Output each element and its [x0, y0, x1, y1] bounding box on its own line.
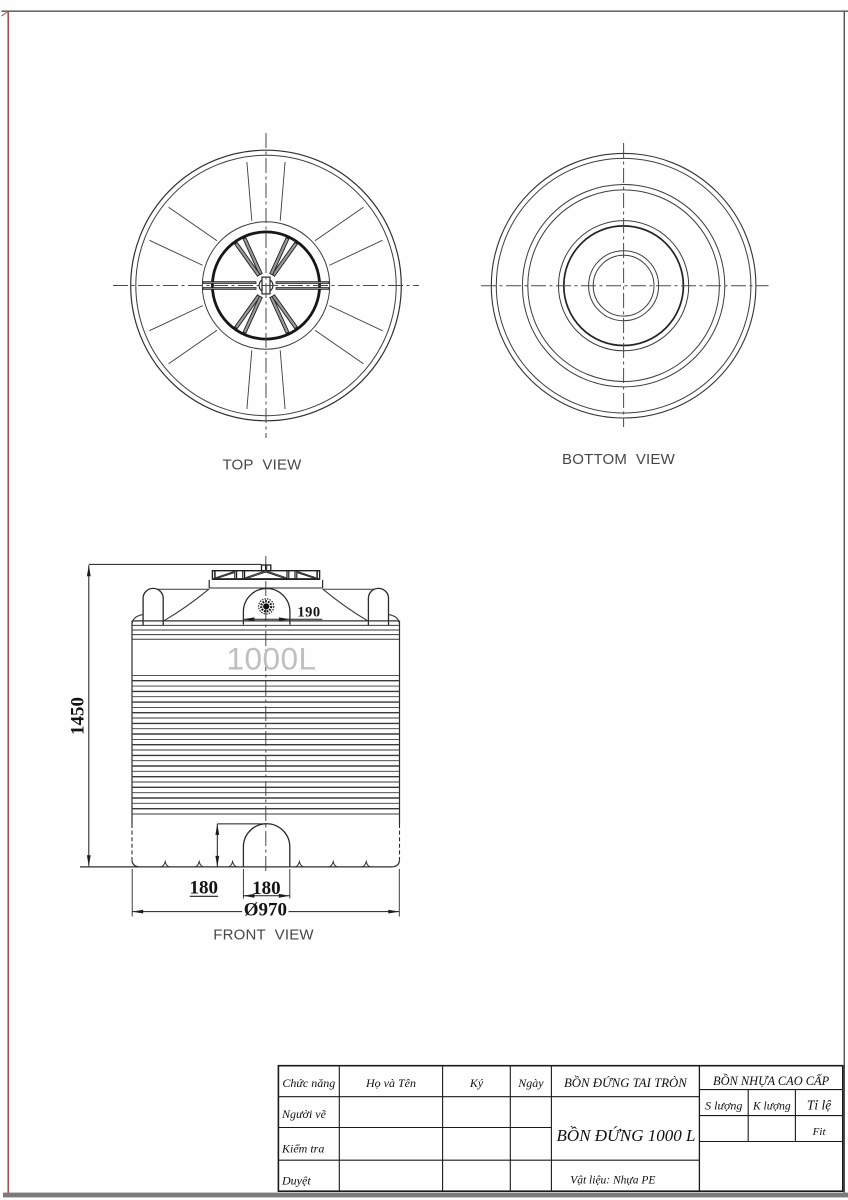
svg-text:180: 180	[190, 878, 219, 899]
svg-text:Chức năng: Chức năng	[282, 1076, 335, 1090]
svg-text:FRONT VIEW: FRONT VIEW	[213, 927, 314, 944]
svg-text:Vật liệu: Nhựa PE: Vật liệu: Nhựa PE	[570, 1175, 655, 1187]
svg-text:Duyệt: Duyệt	[281, 1174, 311, 1188]
svg-text:1450: 1450	[68, 697, 89, 735]
svg-text:BỒN ĐỨNG 1000 L: BỒN ĐỨNG 1000 L	[557, 1125, 696, 1145]
svg-text:1000L: 1000L	[226, 641, 316, 677]
svg-text:Tỉ lệ: Tỉ lệ	[807, 1098, 832, 1113]
svg-text:K lượng: K lượng	[752, 1101, 791, 1113]
svg-text:Họ và Tên: Họ và Tên	[365, 1076, 416, 1090]
svg-text:Ø970: Ø970	[244, 899, 287, 920]
svg-text:180: 180	[252, 878, 281, 899]
svg-text:BOTTOM VIEW: BOTTOM VIEW	[562, 451, 676, 468]
svg-text:BỒN ĐỨNG TAI TRÒN: BỒN ĐỨNG TAI TRÒN	[564, 1075, 688, 1090]
svg-text:Người vẽ: Người vẽ	[281, 1107, 327, 1121]
svg-text:Fit: Fit	[812, 1126, 827, 1138]
svg-text:190: 190	[297, 605, 320, 621]
svg-text:Ngày: Ngày	[517, 1076, 544, 1090]
svg-text:Kiểm tra: Kiểm tra	[281, 1142, 324, 1156]
svg-text:TOP VIEW: TOP VIEW	[222, 457, 302, 474]
svg-text:BỒN NHỰA CAO CẤP: BỒN NHỰA CAO CẤP	[713, 1073, 830, 1088]
svg-text:S lượng: S lượng	[705, 1099, 742, 1113]
svg-text:Ký: Ký	[469, 1076, 484, 1090]
